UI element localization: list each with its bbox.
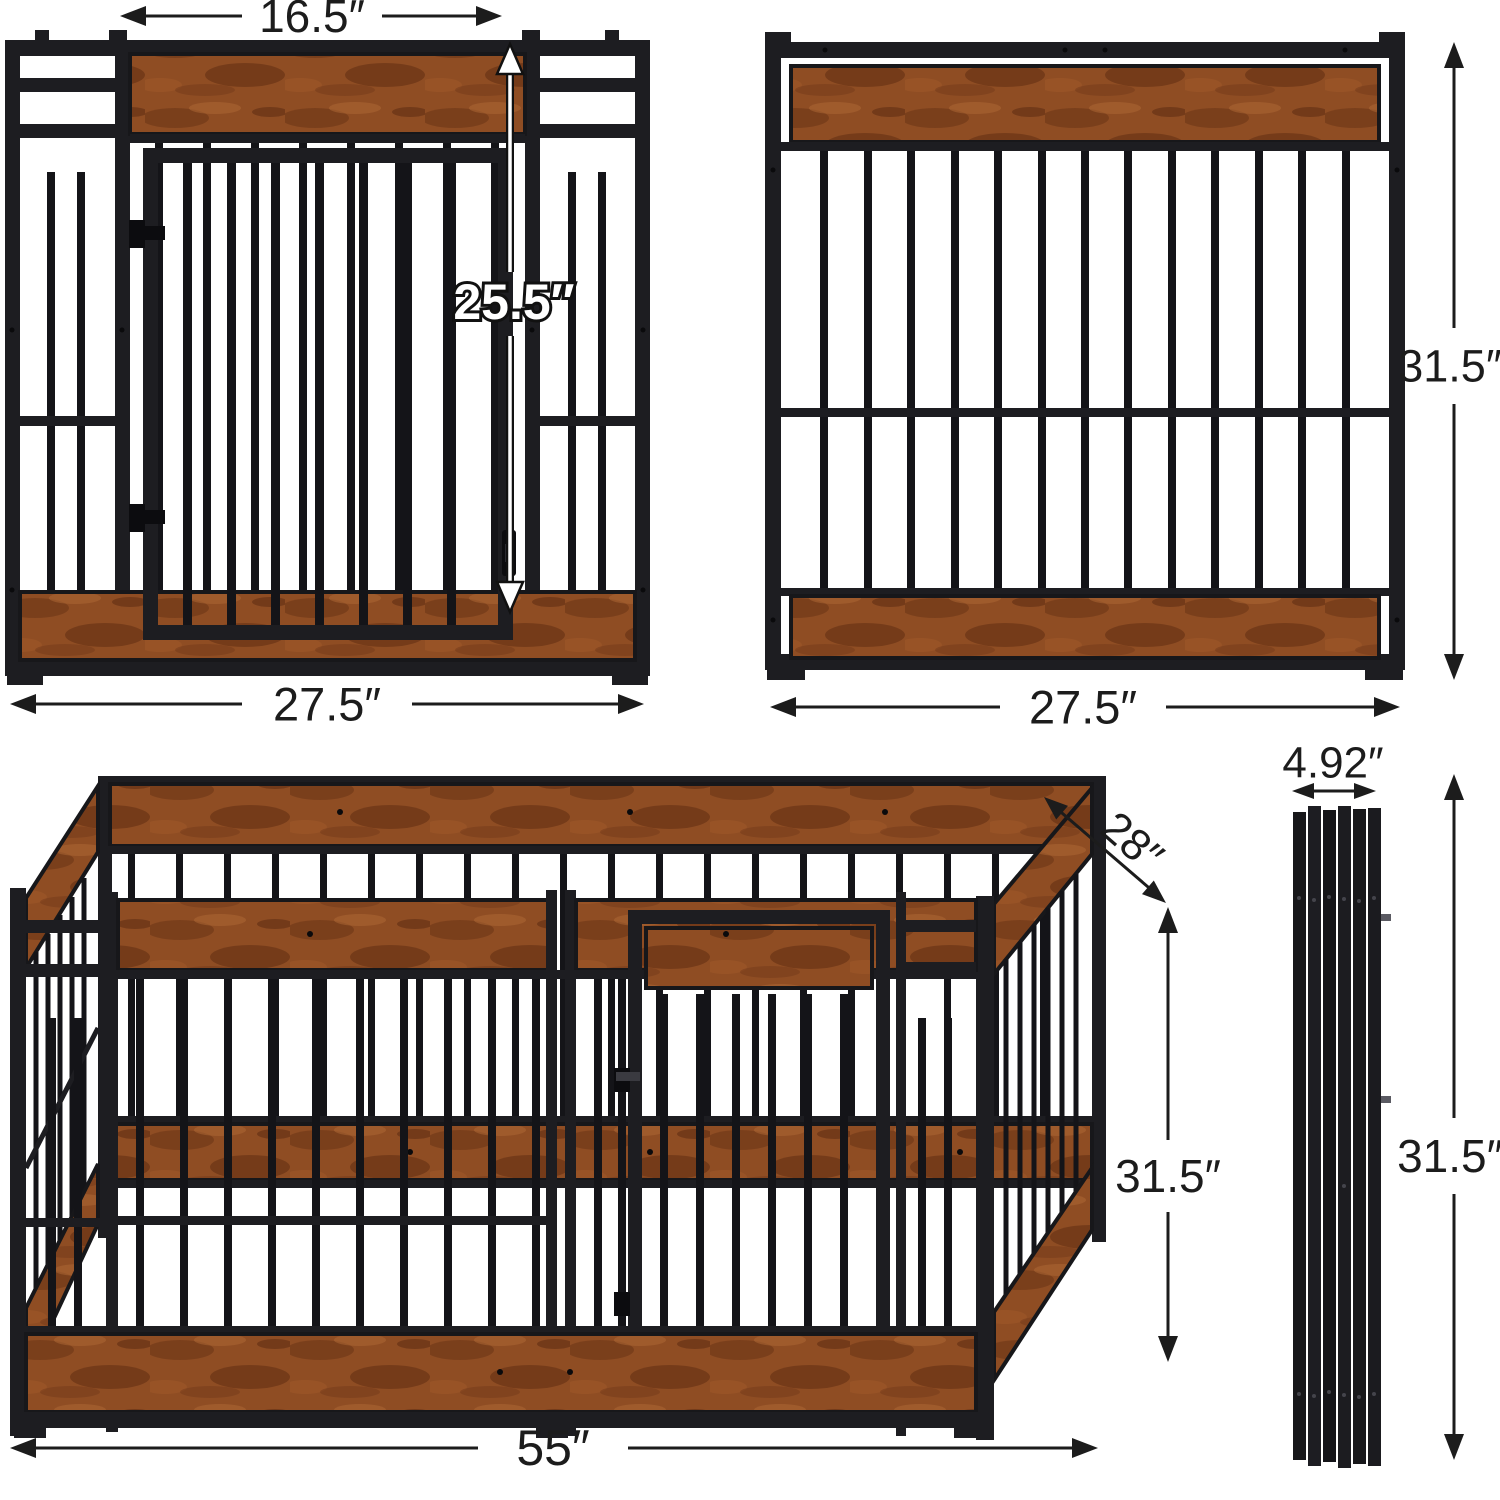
dim-back-panel-width-label: 27.5″ xyxy=(1029,681,1137,734)
dim-panel-height: 31.5″ xyxy=(1398,42,1500,680)
product-dimension-diagram: 16.5″ 25.5″ 27.5″ 27.5″ xyxy=(0,0,1500,1500)
dim-front-panel-width: 27.5″ xyxy=(10,678,644,731)
assembled-playpen-view xyxy=(10,772,1110,1450)
pen-front-bottom-wood-plank xyxy=(10,1326,994,1438)
dim-pen-height: 31.5″ xyxy=(1115,907,1221,1362)
back-panel-bottom-wood-plank xyxy=(781,588,1389,658)
folded-hinge-pins xyxy=(1381,914,1391,1103)
dim-folded-height: 31.5″ xyxy=(1397,774,1500,1460)
back-panel-bars xyxy=(781,151,1389,588)
dim-back-panel-width: 27.5″ xyxy=(770,681,1400,734)
front-panel-door xyxy=(129,148,516,640)
back-panel-top-wood-plank xyxy=(781,66,1389,151)
pen-left-wall xyxy=(26,786,98,1378)
front-panel-screws xyxy=(10,328,646,593)
dim-folded-width-label: 4.92″ xyxy=(1282,739,1383,788)
front-panel-view xyxy=(5,30,650,685)
front-panel-top-wood-plank xyxy=(130,54,525,143)
dim-front-panel-width-label: 27.5″ xyxy=(273,678,381,731)
back-panel-view xyxy=(765,30,1405,685)
dim-pen-height-label: 31.5″ xyxy=(1115,1150,1221,1202)
door-latch-icon xyxy=(502,530,516,576)
dim-panel-height-label: 31.5″ xyxy=(1398,341,1500,392)
dim-folded-height-label: 31.5″ xyxy=(1397,1130,1500,1182)
folded-slats xyxy=(1293,806,1381,1468)
pen-door-latch-icon xyxy=(616,1072,640,1081)
dim-folded-width: 4.92″ xyxy=(1282,739,1383,800)
folded-panels-view xyxy=(1293,806,1393,1468)
